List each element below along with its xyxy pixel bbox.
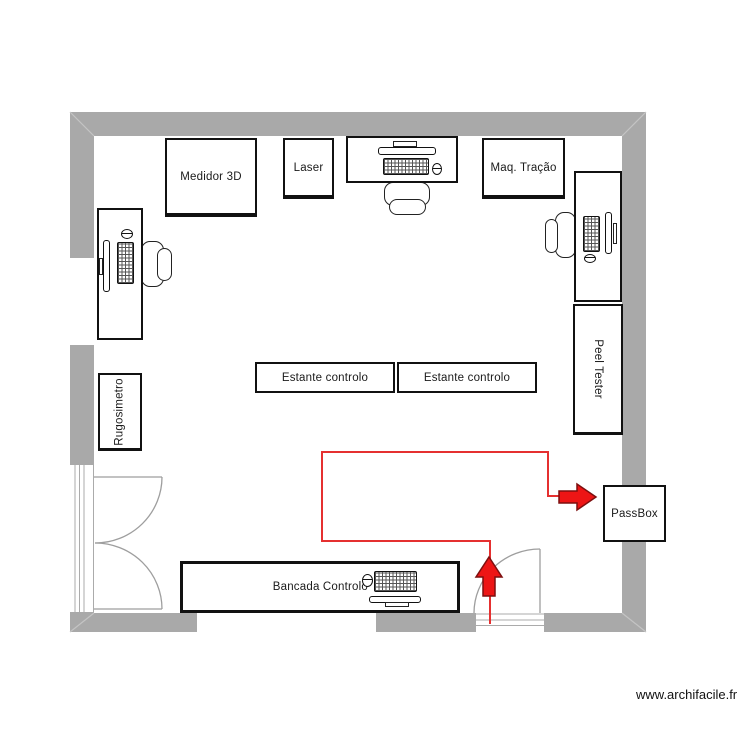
maq-tracao-label: Maq. Tração [490,162,556,174]
equipment-rugosimetro[interactable]: Rugosimetro [98,373,142,451]
keyboard-icon [383,158,429,175]
monitor-stand-icon [385,602,409,607]
equipment-maq-tracao[interactable]: Maq. Tração [482,138,565,199]
door-bottom-right [474,549,540,613]
laser-label: Laser [294,162,324,174]
window-opening-left [69,258,95,345]
passbox-label: PassBox [611,508,658,520]
window-opening-bottom [197,612,376,633]
mouse-icon [584,254,596,263]
mouse-icon [362,574,373,587]
equipment-laser[interactable]: Laser [283,138,334,199]
estante-controlo-2-label: Estante controlo [424,372,510,384]
monitor-stand-icon [613,223,617,244]
floor-plan: Medidor 3D Laser Maq. Tração Estante con… [0,0,750,750]
equipment-estante-controlo-2[interactable]: Estante controlo [397,362,537,393]
keyboard-icon [374,571,417,592]
door-opening-bottom [476,612,544,633]
monitor-icon [103,240,110,292]
office-chair-icon[interactable] [555,212,576,258]
watermark: www.archifacile.fr [636,687,737,702]
equipment-passbox[interactable]: PassBox [603,485,666,542]
double-door-left [94,477,162,609]
equipment-bancada-controlo[interactable]: Bancada Controlo [180,561,460,613]
peel-tester-label: Peel Tester [592,339,604,399]
wall-right [622,112,646,632]
equipment-medidor-3d[interactable]: Medidor 3D [165,138,257,217]
office-chair-back-icon [545,219,558,253]
red-block-arrow-up [476,557,502,596]
mouse-icon [432,163,442,175]
wall-top [70,112,646,136]
estante-controlo-1-label: Estante controlo [282,372,368,384]
rugosimetro-label: Rugosimetro [114,378,126,445]
mouse-icon [121,229,133,239]
keyboard-icon [117,242,134,284]
door-opening-left [69,465,95,612]
monitor-icon [605,212,612,254]
red-block-arrow-right [559,484,596,510]
office-chair-back-icon [389,199,426,215]
keyboard-icon [583,216,600,252]
office-chair-back-icon [157,248,172,281]
equipment-peel-tester[interactable]: Peel Tester [573,304,623,435]
medidor-3d-label: Medidor 3D [180,171,241,183]
equipment-estante-controlo-1[interactable]: Estante controlo [255,362,395,393]
bancada-controlo-label: Bancada Controlo [183,564,368,610]
monitor-icon [378,147,436,155]
